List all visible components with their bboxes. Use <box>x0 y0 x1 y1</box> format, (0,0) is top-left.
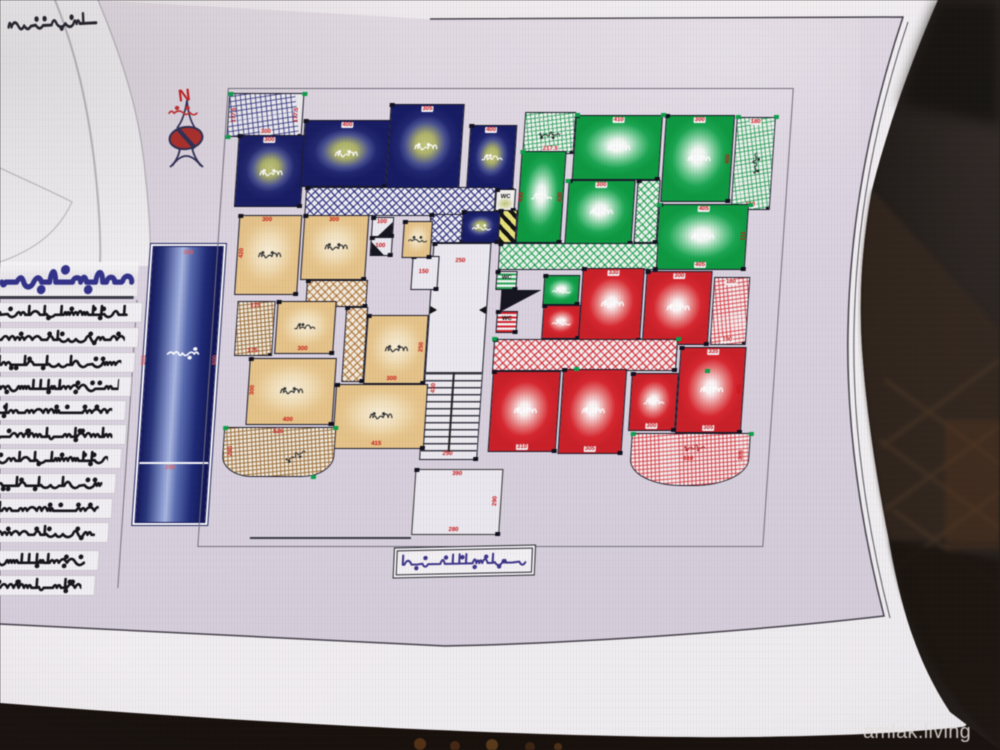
svg-text:N: N <box>177 85 192 105</box>
